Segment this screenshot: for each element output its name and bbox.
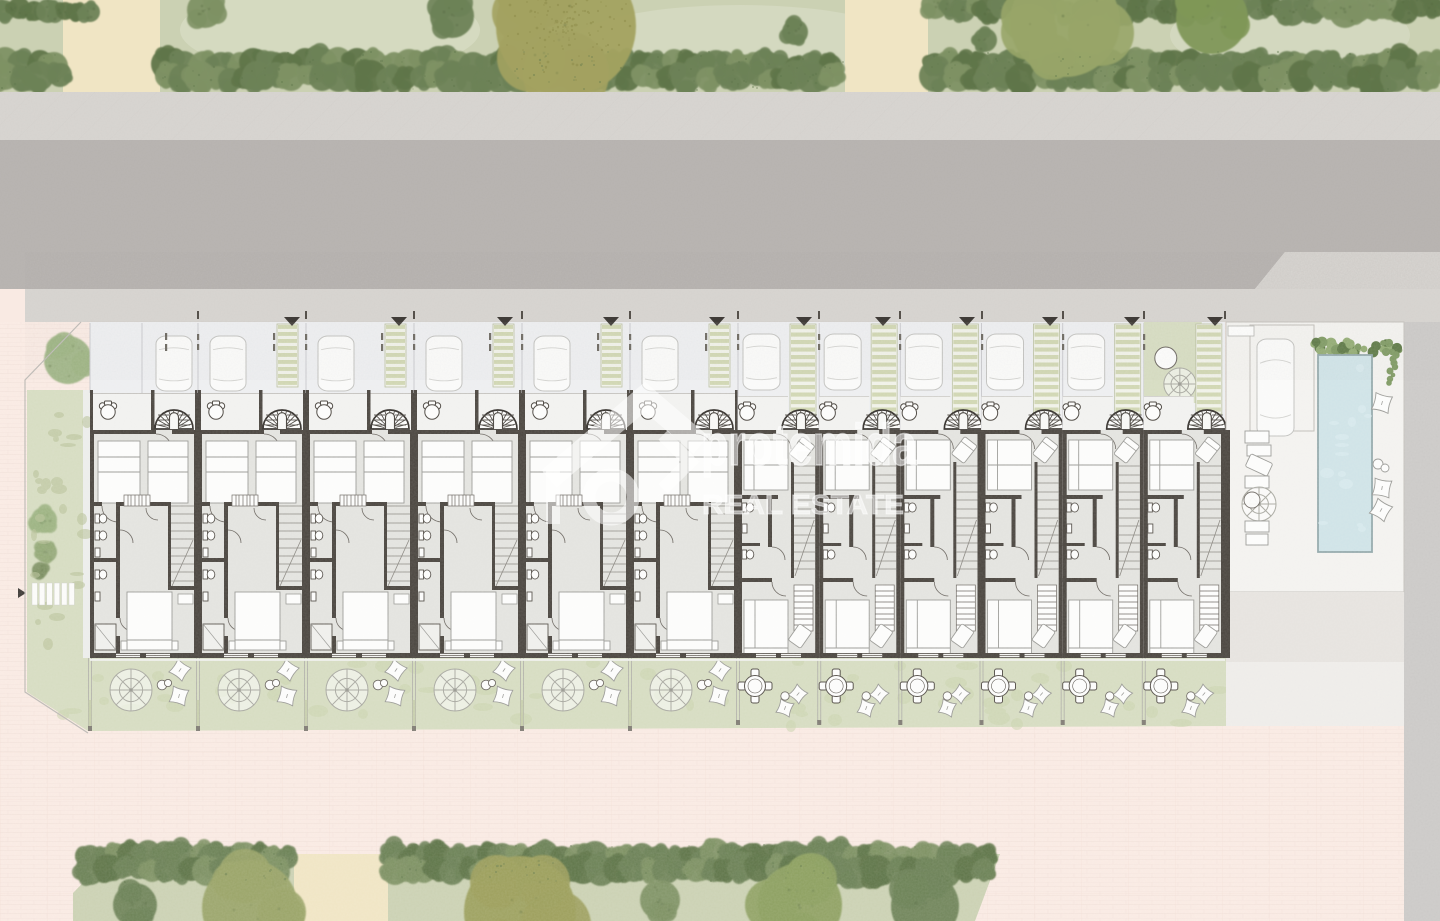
svg-text:REAL ESTATE: REAL ESTATE [702, 489, 904, 520]
svg-text:protemida: protemida [701, 413, 918, 478]
